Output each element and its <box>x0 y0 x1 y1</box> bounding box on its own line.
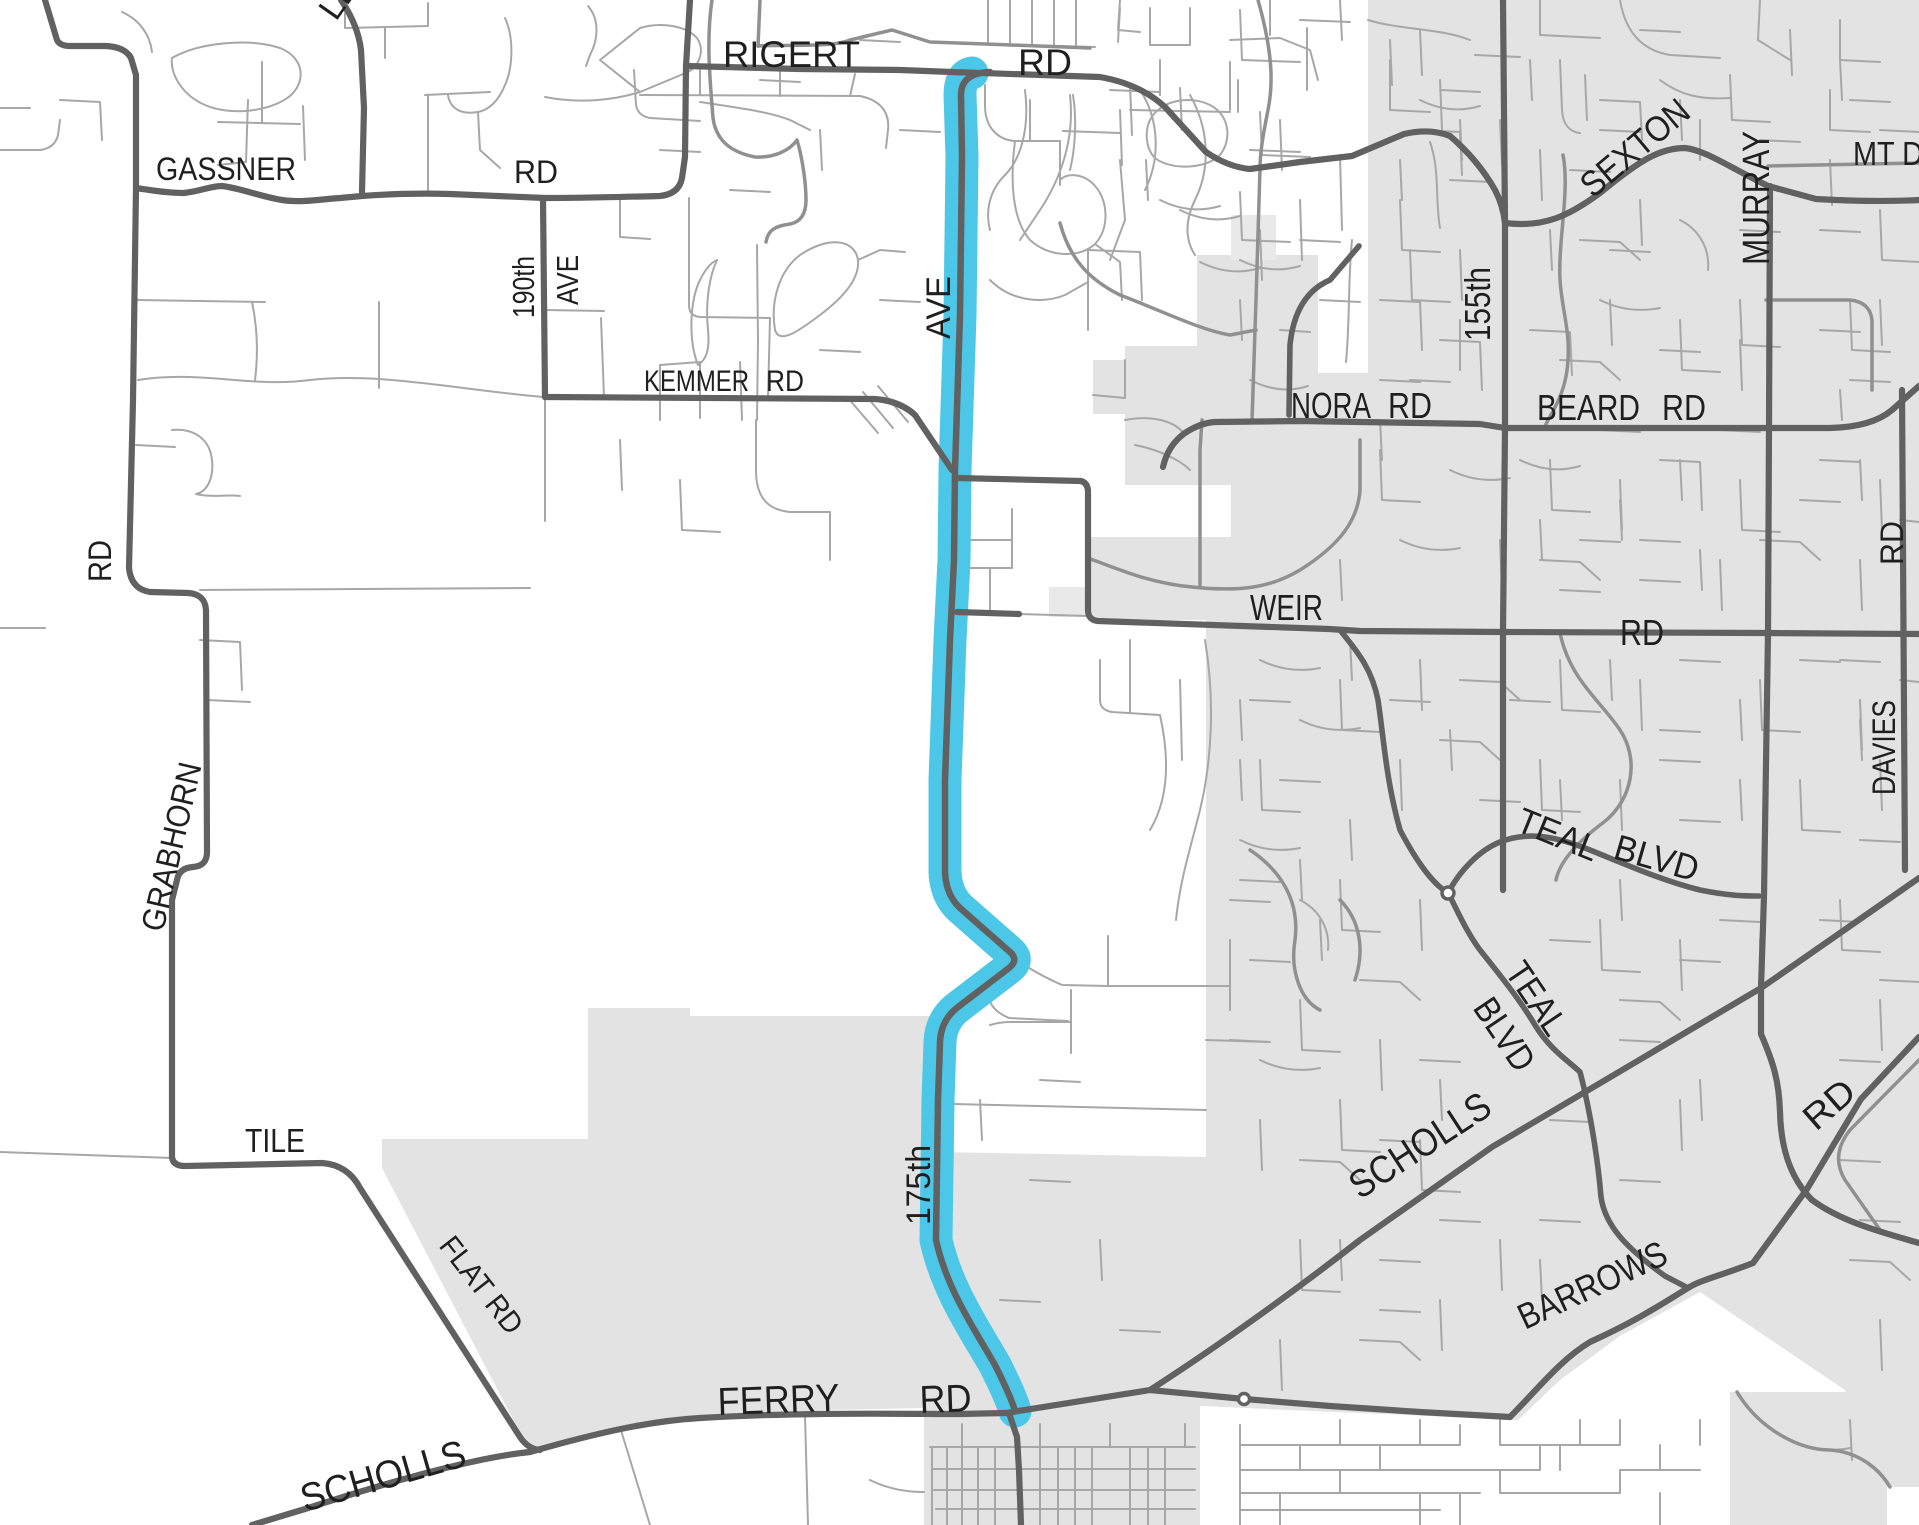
svg-text:AVE: AVE <box>550 255 585 305</box>
svg-text:WEIR: WEIR <box>1250 587 1323 628</box>
svg-text:MT D: MT D <box>1853 135 1919 172</box>
svg-text:175th: 175th <box>900 1145 938 1225</box>
svg-text:DAVIES: DAVIES <box>1866 700 1902 795</box>
svg-text:RD: RD <box>919 1377 972 1422</box>
svg-text:NORA: NORA <box>1291 385 1371 426</box>
svg-text:RD: RD <box>1662 387 1706 428</box>
svg-text:190th: 190th <box>506 256 541 318</box>
svg-text:AVE: AVE <box>920 276 958 339</box>
svg-text:RD: RD <box>1620 612 1664 653</box>
svg-text:RD: RD <box>766 365 804 398</box>
svg-text:RIGERT: RIGERT <box>723 34 860 75</box>
svg-text:KEMMER: KEMMER <box>644 365 749 398</box>
svg-text:BEARD: BEARD <box>1537 387 1640 428</box>
svg-text:MURRAY: MURRAY <box>1736 131 1778 265</box>
svg-text:TILE: TILE <box>245 1122 305 1159</box>
svg-text:RD: RD <box>514 154 558 190</box>
svg-text:GASSNER: GASSNER <box>156 151 296 187</box>
svg-text:RD: RD <box>1874 521 1910 565</box>
svg-text:FERRY: FERRY <box>717 1377 840 1424</box>
svg-text:RD: RD <box>1388 385 1432 426</box>
svg-text:155th: 155th <box>1457 267 1498 341</box>
svg-text:RD: RD <box>1018 42 1072 83</box>
svg-text:RD: RD <box>82 540 118 582</box>
